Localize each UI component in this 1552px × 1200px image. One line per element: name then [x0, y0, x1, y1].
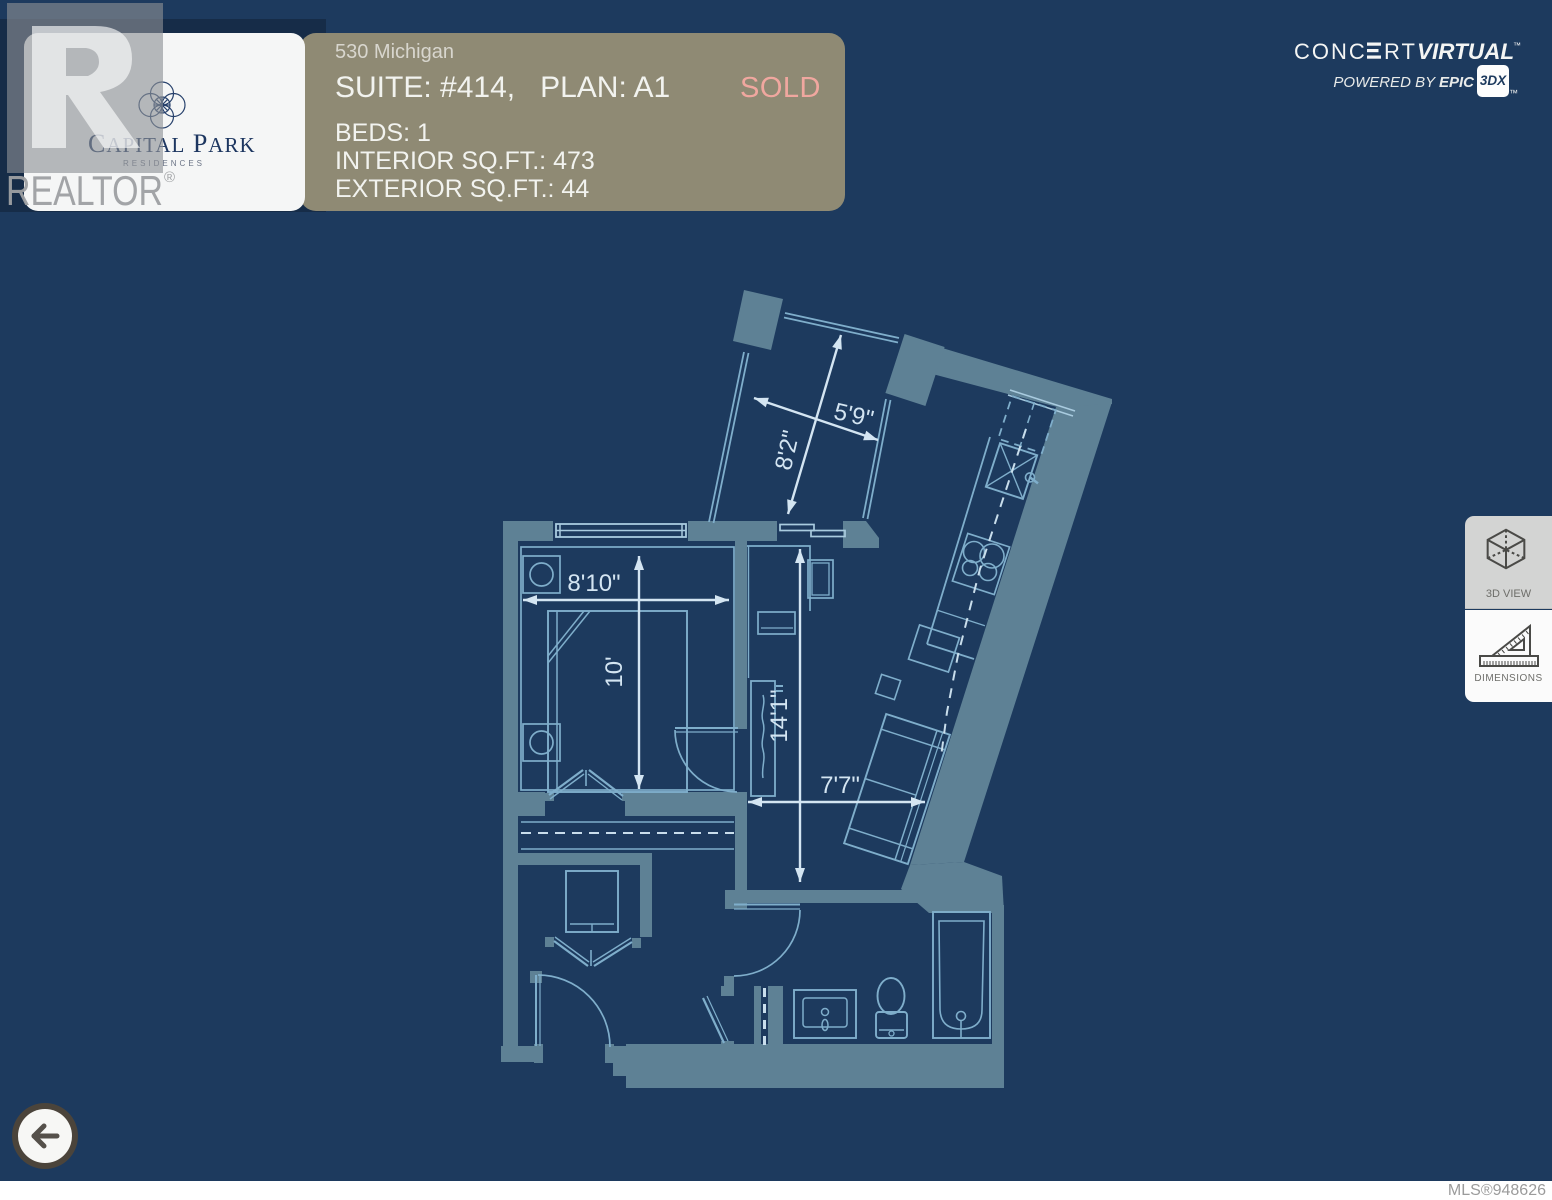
svg-text:7'7": 7'7" [820, 772, 860, 799]
svg-text:14'1": 14'1" [766, 689, 793, 742]
svg-text:5'9": 5'9" [831, 398, 876, 433]
svg-text:CONC: CONC [1294, 39, 1367, 64]
svg-text:®: ® [164, 169, 175, 186]
svg-text:10': 10' [601, 656, 628, 687]
svg-text:8'2": 8'2" [770, 428, 805, 473]
svg-text:POWERED BY EPIC: POWERED BY EPIC [1333, 74, 1475, 91]
svg-text:™: ™ [1513, 41, 1521, 50]
svg-text:VIRTUAL: VIRTUAL [1417, 39, 1514, 64]
svg-text:8'10": 8'10" [567, 570, 620, 597]
svg-text:REALTOR: REALTOR [6, 167, 163, 214]
svg-text:RT: RT [1384, 39, 1417, 64]
